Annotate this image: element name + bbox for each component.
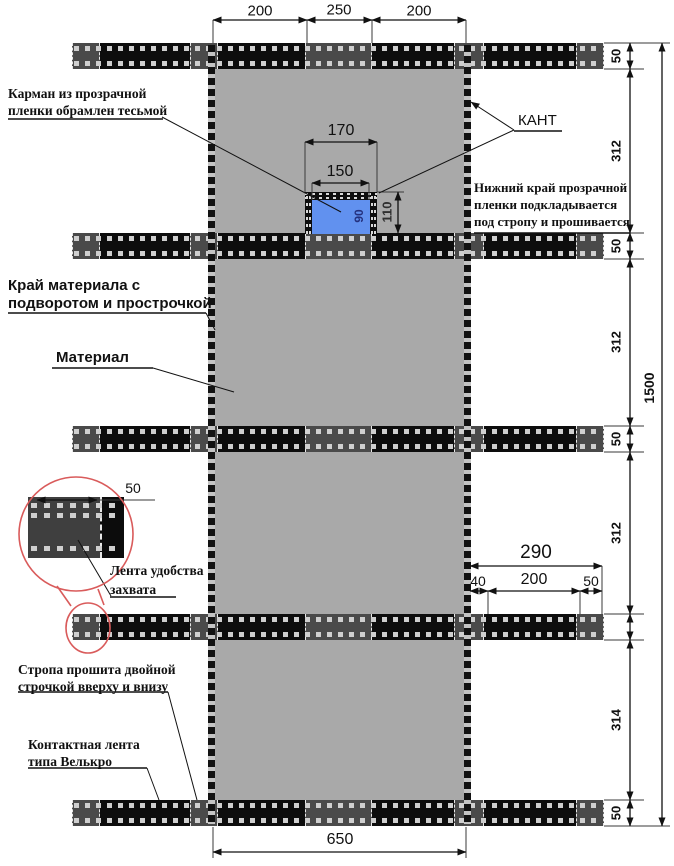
dim-pocket-height: 110 xyxy=(380,202,395,223)
strap-segment xyxy=(305,233,372,259)
dim-top-right: 200 xyxy=(406,3,431,20)
strap-5 xyxy=(72,800,602,826)
dim-top-center: 250 xyxy=(326,2,351,19)
dim-chain-50b: 50 xyxy=(609,239,624,253)
velcro-annotation: Контактная лента типа Велькро xyxy=(28,736,140,770)
strap-4 xyxy=(72,614,602,640)
grip-tape-line1: Лента удобства xyxy=(110,561,204,580)
material-left-edge-stitching xyxy=(208,45,215,824)
material-right-edge-stitching xyxy=(464,45,471,824)
strap-segment xyxy=(576,800,604,826)
film-edge-line3: под стропу и прошивается xyxy=(474,213,630,230)
dim-strap-right-40: 40 xyxy=(470,573,486,589)
strap-segment xyxy=(305,43,372,69)
strap-segment xyxy=(305,426,372,452)
dim-chain-50a: 50 xyxy=(609,49,624,63)
pocket-annotation-line1: Карман из прозрачной xyxy=(8,85,167,102)
grip-tape-detail xyxy=(28,497,122,558)
dim-pocket-inner: 150 xyxy=(327,163,354,181)
material-label: Материал xyxy=(56,349,129,367)
grip-tape-detail-stitch-row xyxy=(31,546,119,551)
strap-segment xyxy=(576,614,604,640)
strap-segment xyxy=(72,800,100,826)
strap-stitching-line1: Стропа прошита двойной xyxy=(18,661,176,678)
pocket-frame xyxy=(305,192,377,234)
grip-tape-annotation: Лента удобства захвата xyxy=(110,561,204,599)
film-edge-annotation: Нижний край прозрачной пленки подкладыва… xyxy=(474,179,630,230)
pocket-annotation: Карман из прозрачной пленки обрамлен тес… xyxy=(8,85,167,119)
dim-chain-314: 314 xyxy=(609,709,624,731)
dim-pocket-film-height: 90 xyxy=(352,209,366,222)
material-edge-line1: Край материала с xyxy=(8,277,212,295)
dim-strap-right-total: 290 xyxy=(520,542,552,564)
strap-segment xyxy=(72,614,100,640)
dim-chain-312b: 312 xyxy=(609,331,624,353)
dim-overall-height: 1500 xyxy=(641,372,657,403)
strap-stitching-line2: строчкой вверху и внизу xyxy=(18,678,176,695)
film-edge-line2: пленки подкладывается xyxy=(474,196,630,213)
technical-drawing-canvas: Карман из прозрачной пленки обрамлен тес… xyxy=(0,0,674,866)
dim-chain-312c: 312 xyxy=(609,522,624,544)
material-edge-line2: подворотом и прострочкой xyxy=(8,295,212,313)
strap-3 xyxy=(72,426,602,452)
strap-segment xyxy=(576,43,604,69)
kant-label: КАНТ xyxy=(518,112,557,129)
velcro-line2: типа Велькро xyxy=(28,753,140,770)
strap-segment xyxy=(72,426,100,452)
dim-strap-right-50: 50 xyxy=(583,573,599,589)
strap-segment xyxy=(305,614,372,640)
strap-segment xyxy=(576,233,604,259)
dim-pocket-outer: 170 xyxy=(328,122,355,140)
dim-chain-50d: 50 xyxy=(609,806,624,820)
strap-segment xyxy=(305,800,372,826)
dim-strap-right-200: 200 xyxy=(521,571,548,589)
strap-segment xyxy=(72,43,100,69)
velcro-line1: Контактная лента xyxy=(28,736,140,753)
grip-tape-line2: захвата xyxy=(110,580,204,599)
strap-2 xyxy=(72,233,602,259)
strap-1 xyxy=(72,43,602,69)
dim-top-left: 200 xyxy=(247,3,272,20)
film-edge-line1: Нижний край прозрачной xyxy=(474,179,630,196)
dim-chain-50c: 50 xyxy=(609,432,624,446)
strap-segment xyxy=(576,426,604,452)
strap-stitching-annotation: Стропа прошита двойной строчкой вверху и… xyxy=(18,661,176,695)
dim-detail-grip: 50 xyxy=(125,480,141,496)
pocket-annotation-line2: пленки обрамлен тесьмой xyxy=(8,102,167,119)
strap-segment xyxy=(72,233,100,259)
dim-bottom-width: 650 xyxy=(327,831,354,849)
material-edge-annotation: Край материала с подворотом и прострочко… xyxy=(8,277,212,313)
dim-chain-312a: 312 xyxy=(609,140,624,162)
